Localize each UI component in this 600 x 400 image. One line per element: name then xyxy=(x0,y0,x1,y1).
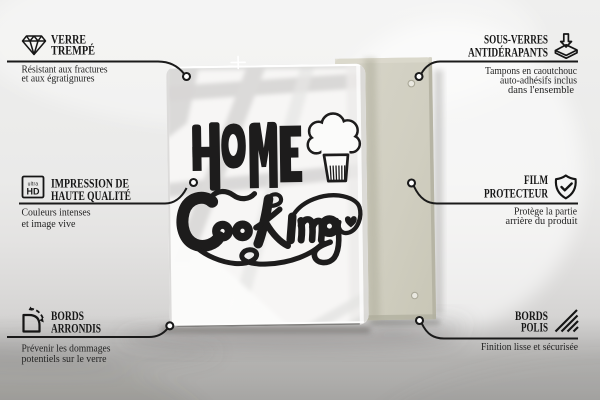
svg-text:Prévenir les dommages: Prévenir les dommages xyxy=(22,344,111,355)
svg-text:potentiels sur le verre: potentiels sur le verre xyxy=(22,354,107,365)
svg-text:Couleurs intenses: Couleurs intenses xyxy=(22,208,91,219)
svg-text:arrière du produit: arrière du produit xyxy=(506,216,578,227)
svg-text:ARRONDIS: ARRONDIS xyxy=(51,321,101,336)
svg-text:HAUTE QUALITÉ: HAUTE QUALITÉ xyxy=(51,188,131,203)
svg-text:dans l'ensemble: dans l'ensemble xyxy=(508,85,574,96)
svg-text:Finition lisse et sécurisée: Finition lisse et sécurisée xyxy=(481,342,578,353)
svg-text:et image vive: et image vive xyxy=(22,219,76,230)
svg-text:PROTECTEUR: PROTECTEUR xyxy=(484,186,548,201)
svg-text:et aux égratignures: et aux égratignures xyxy=(22,74,95,85)
svg-text:HD: HD xyxy=(27,187,40,197)
svg-text:TREMPÉ: TREMPÉ xyxy=(51,43,95,58)
svg-text:ANTIDÉRAPANTS: ANTIDÉRAPANTS xyxy=(468,45,548,60)
svg-text:POLIS: POLIS xyxy=(521,320,548,335)
